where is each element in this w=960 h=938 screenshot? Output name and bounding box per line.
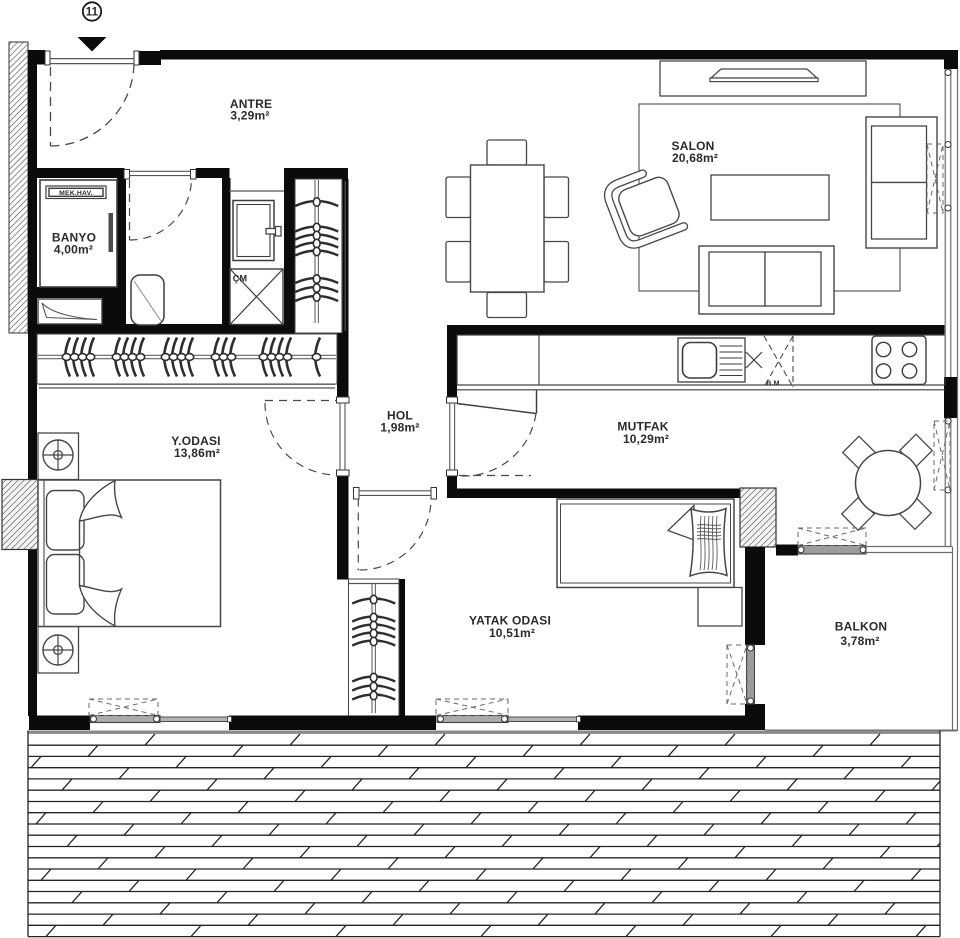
svg-text:1,98m²: 1,98m² <box>380 421 419 435</box>
svg-text:B.M: B.M <box>766 381 779 388</box>
svg-text:ÇM: ÇM <box>233 274 247 284</box>
svg-text:10,51m²: 10,51m² <box>489 626 535 640</box>
svg-text:10,29m²: 10,29m² <box>623 432 669 446</box>
svg-text:11: 11 <box>86 7 99 19</box>
svg-text:20,68m²: 20,68m² <box>672 151 718 165</box>
svg-text:13,86m²: 13,86m² <box>174 446 220 460</box>
svg-text:3,78m²: 3,78m² <box>840 634 879 648</box>
svg-text:4,00m²: 4,00m² <box>54 243 93 257</box>
svg-text:MEK.HAV.: MEK.HAV. <box>59 190 93 197</box>
svg-text:BALKON: BALKON <box>835 620 888 634</box>
svg-text:3,29m²: 3,29m² <box>230 109 269 123</box>
